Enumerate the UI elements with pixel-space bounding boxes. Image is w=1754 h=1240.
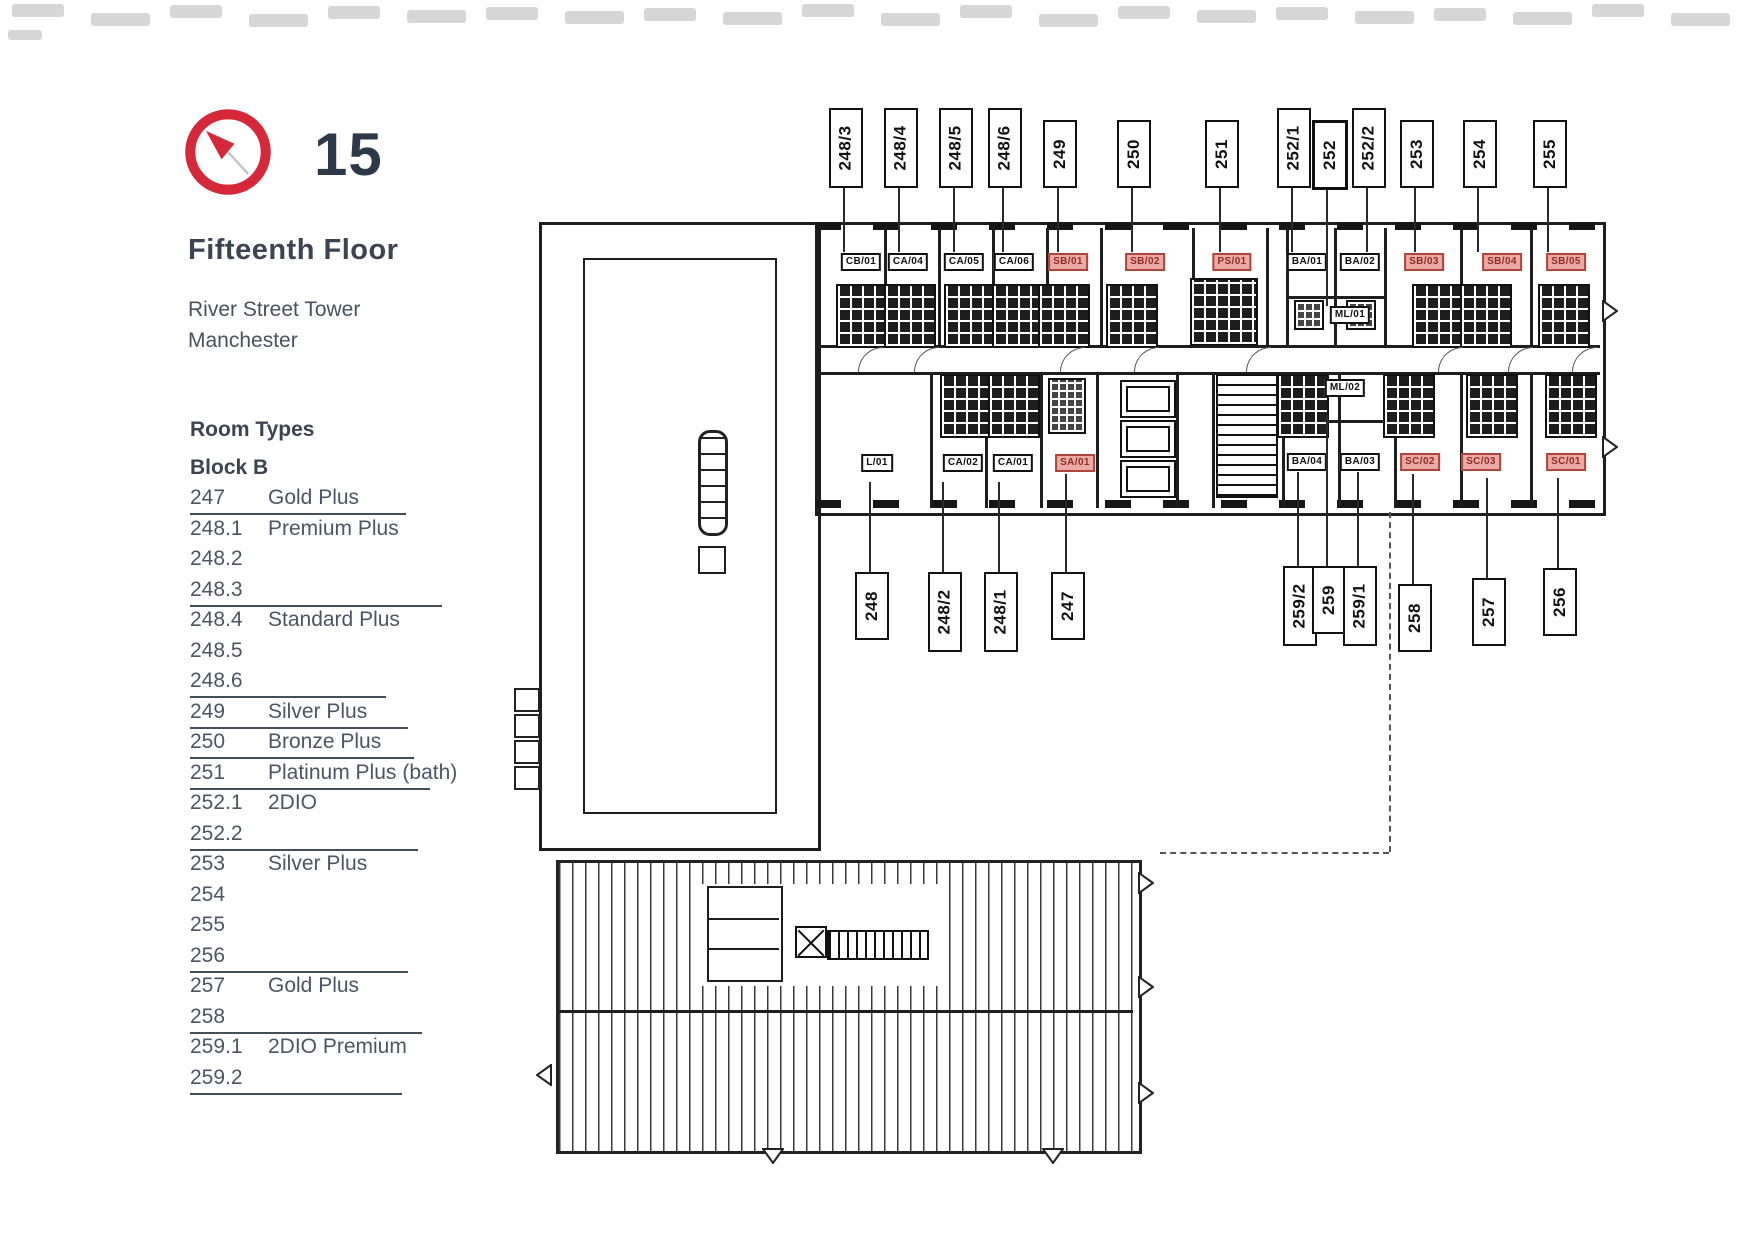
- room-number-label-text: 248/6: [995, 125, 1015, 170]
- bed-icon: [1466, 374, 1518, 438]
- room-wall: [1176, 372, 1179, 508]
- room-number-label-text: 259/2: [1290, 583, 1310, 628]
- leader-line: [1547, 184, 1549, 252]
- room-number-label: 252/1: [1277, 108, 1311, 188]
- leader-line: [1291, 184, 1293, 252]
- room-wall: [1530, 372, 1533, 508]
- room-number-label-text: 247: [1058, 591, 1078, 621]
- edge-marker-icon: [762, 1148, 784, 1169]
- room-number-label: 258: [1398, 584, 1432, 652]
- room-number-label-text: 248/3: [836, 125, 856, 170]
- leader-line: [1486, 478, 1488, 578]
- leader-line: [1131, 184, 1133, 252]
- bed-icon: [944, 284, 996, 348]
- edge-marker-icon: [1138, 872, 1154, 899]
- room-wall: [1096, 372, 1099, 508]
- unit-code-label: SB/04: [1482, 253, 1522, 271]
- room-number-label: 252: [1312, 120, 1348, 190]
- edge-marker-icon: [1602, 436, 1618, 463]
- bed-icon: [1277, 374, 1329, 438]
- bed-icon: [836, 284, 888, 348]
- boundary-dashed: [1389, 512, 1391, 852]
- room-number-label-text: 248/5: [946, 125, 966, 170]
- unit-code-label: BA/03: [1340, 453, 1380, 471]
- leader-line: [1412, 474, 1414, 584]
- room-wall: [1530, 228, 1533, 345]
- leader-line: [1477, 184, 1479, 252]
- room-number-label-text: 249: [1050, 139, 1070, 169]
- shower-pod-icon: [1048, 378, 1086, 434]
- floor-plan-page: 15 Fifteenth Floor River Street Tower Ma…: [0, 0, 1754, 1240]
- unit-code-label: CA/06: [994, 253, 1034, 271]
- unit-code-label: SC/02: [1400, 453, 1440, 471]
- edge-marker-icon: [1138, 1082, 1154, 1109]
- room-wall: [1266, 228, 1269, 345]
- room-wall: [1286, 296, 1384, 299]
- leader-line: [1326, 415, 1328, 566]
- unit-code-label: CB/01: [841, 253, 881, 271]
- room-number-label-text: 257: [1479, 597, 1499, 627]
- facade-strip: [815, 222, 1600, 230]
- room-number-label-text: 252/1: [1284, 125, 1304, 170]
- terrace-structure: [707, 886, 783, 982]
- leader-line: [1297, 472, 1299, 566]
- leader-line: [1357, 472, 1359, 566]
- leader-line: [1002, 184, 1004, 252]
- unit-code-label: SC/03: [1461, 453, 1501, 471]
- room-number-label: 255: [1533, 120, 1567, 188]
- bed-icon: [1383, 374, 1435, 438]
- room-number-label: 251: [1205, 120, 1239, 188]
- room-number-label: 253: [1400, 120, 1434, 188]
- leader-line: [1326, 184, 1328, 306]
- room-wall: [1100, 228, 1103, 345]
- room-wall: [938, 228, 941, 345]
- room-wall: [1384, 228, 1387, 345]
- room-number-label: 252/2: [1352, 108, 1386, 188]
- room-wall: [1334, 228, 1337, 345]
- room-number-label: 250: [1117, 120, 1151, 188]
- room-wall: [1286, 228, 1289, 345]
- room-number-label-text: 252: [1320, 140, 1340, 170]
- room-number-label-text: 248: [862, 591, 882, 621]
- leader-line: [869, 482, 871, 572]
- balcony-box: [514, 714, 540, 738]
- unit-code-label: CA/01: [993, 454, 1033, 472]
- unit-code-label: BA/04: [1287, 453, 1327, 471]
- room-number-label-text: 254: [1470, 139, 1490, 169]
- bed-icon: [1460, 284, 1512, 348]
- terrace-structure-line: [707, 918, 779, 920]
- unit-code-label: SA/01: [1055, 454, 1095, 472]
- balcony-box: [514, 766, 540, 790]
- unit-code-label: SB/05: [1546, 253, 1586, 271]
- room-number-label: 248/5: [939, 108, 973, 188]
- room-number-label-text: 251: [1212, 139, 1232, 169]
- room-number-label-text: 250: [1124, 139, 1144, 169]
- room-number-label: 248/6: [988, 108, 1022, 188]
- leader-line: [1557, 478, 1559, 568]
- edge-marker-icon: [1042, 1148, 1064, 1169]
- room-number-label: 254: [1463, 120, 1497, 188]
- room-wall: [1212, 372, 1215, 508]
- bed-icon: [988, 374, 1040, 438]
- lift-icon: [1120, 460, 1176, 498]
- leader-line: [953, 184, 955, 252]
- balcony-box: [514, 740, 540, 764]
- room-number-label-text: 252/2: [1359, 125, 1379, 170]
- unit-code-label: L/01: [861, 454, 893, 472]
- stairwell-icon: [1216, 374, 1278, 498]
- pool-ladder-icon: [698, 430, 728, 536]
- room-number-label-text: 248/4: [891, 125, 911, 170]
- room-number-label-text: 256: [1550, 587, 1570, 617]
- leader-line: [843, 184, 845, 252]
- room-number-label: 259/1: [1343, 566, 1377, 646]
- unit-code-label: CA/04: [888, 253, 928, 271]
- bed-icon: [1538, 284, 1590, 348]
- shower-pod-icon: [1294, 300, 1324, 330]
- room-number-label: 247: [1051, 572, 1085, 640]
- unit-code-label: SB/02: [1125, 253, 1165, 271]
- lift-icon: [1120, 380, 1176, 418]
- terrace-stair-icon: [827, 930, 929, 960]
- leader-line: [1065, 474, 1067, 572]
- pool-drain-icon: [698, 546, 726, 574]
- unit-code-label: PS/01: [1212, 253, 1251, 271]
- room-number-label-text: 259: [1319, 585, 1339, 615]
- leader-line: [942, 482, 944, 572]
- room-number-label: 248/1: [984, 572, 1018, 652]
- room-number-label-text: 248/1: [991, 589, 1011, 634]
- unit-code-label: SB/01: [1048, 253, 1088, 271]
- unit-code-label: BA/01: [1287, 253, 1327, 271]
- room-wall: [1460, 372, 1463, 508]
- leader-line: [1219, 184, 1221, 252]
- floor-plan: 248/3248/4248/5248/6249250251252/1252252…: [0, 0, 1754, 1240]
- room-number-label-text: 258: [1405, 603, 1425, 633]
- leader-line: [898, 184, 900, 252]
- terrace-structure-line: [707, 948, 779, 950]
- room-number-label: 249: [1043, 120, 1077, 188]
- kitchen-unit-icon: [1190, 278, 1258, 346]
- room-number-label-text: 253: [1407, 139, 1427, 169]
- unit-code-label: ML/01: [1330, 306, 1370, 324]
- unit-code-label: BA/02: [1340, 253, 1380, 271]
- room-number-label-text: 255: [1540, 139, 1560, 169]
- room-number-label: 248/3: [829, 108, 863, 188]
- room-number-label: 256: [1543, 568, 1577, 636]
- room-wall: [930, 372, 933, 508]
- room-wall: [1040, 372, 1043, 508]
- unit-code-label: CA/05: [944, 253, 984, 271]
- edge-marker-icon: [536, 1064, 552, 1091]
- room-number-label: 259: [1312, 566, 1346, 634]
- leader-line: [1414, 184, 1416, 252]
- bed-icon: [884, 284, 936, 348]
- room-number-label: 248/2: [928, 572, 962, 652]
- bed-icon: [1545, 374, 1597, 438]
- bed-icon: [1106, 284, 1158, 348]
- bed-icon: [992, 284, 1044, 348]
- balcony-box: [514, 688, 540, 712]
- bed-icon: [940, 374, 992, 438]
- room-number-label: 248: [855, 572, 889, 640]
- edge-marker-icon: [1602, 300, 1618, 327]
- unit-code-label: SC/01: [1546, 453, 1586, 471]
- room-number-label-text: 259/1: [1350, 583, 1370, 628]
- unit-code-label: CA/02: [943, 454, 983, 472]
- lift-icon: [1120, 420, 1176, 458]
- bed-icon: [1412, 284, 1464, 348]
- room-number-label-text: 248/2: [935, 589, 955, 634]
- leader-line: [1366, 184, 1368, 252]
- room-number-label: 257: [1472, 578, 1506, 646]
- edge-marker-icon: [1138, 976, 1154, 1003]
- room-number-label: 248/4: [884, 108, 918, 188]
- unit-code-label: SB/03: [1404, 253, 1444, 271]
- leader-line: [1057, 184, 1059, 252]
- hatch-box-icon: [795, 926, 827, 958]
- boundary-dashed: [1160, 852, 1389, 854]
- unit-code-label: ML/02: [1325, 379, 1365, 397]
- terrace-seam: [559, 1010, 1133, 1013]
- leader-line: [998, 482, 1000, 572]
- bed-icon: [1038, 284, 1090, 348]
- pool-inner: [583, 258, 777, 814]
